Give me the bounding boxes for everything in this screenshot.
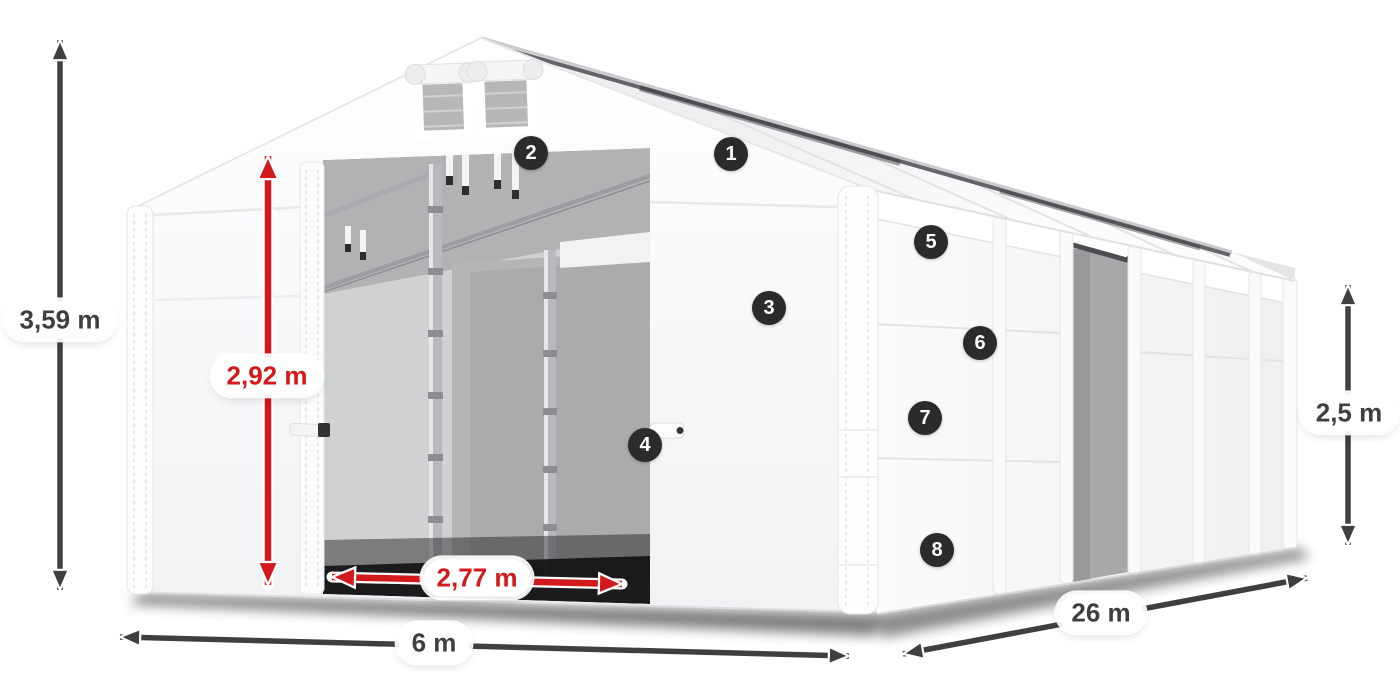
- callout-badge-7[interactable]: 7: [908, 401, 942, 435]
- callout-badge-3[interactable]: 3: [752, 291, 786, 325]
- arrow-width: [120, 637, 849, 656]
- gable-vent-right: [467, 59, 545, 132]
- callout-badge-6[interactable]: 6: [963, 326, 997, 360]
- callout-badge-1[interactable]: 1: [714, 137, 748, 171]
- side-door-opening: [1066, 243, 1134, 582]
- tent-illustration: [0, 0, 1400, 700]
- callout-badge-5[interactable]: 5: [914, 225, 948, 259]
- entrance-interior: [323, 148, 650, 604]
- dimension-label-length: 26 m: [1058, 594, 1143, 631]
- dimension-label-side-height: 2,5 m: [1303, 394, 1396, 431]
- callout-badge-8[interactable]: 8: [920, 533, 954, 567]
- dimension-label-entrance-height: 2,92 m: [214, 357, 321, 394]
- dimension-label-total-height: 3,59 m: [7, 301, 114, 338]
- tent-dimension-diagram: 3,59 m 2,92 m 2,77 m 6 m 26 m 2,5 m 1 2 …: [0, 0, 1400, 700]
- door-latch: [290, 423, 330, 437]
- dimension-label-width: 6 m: [399, 624, 470, 661]
- callout-badge-4[interactable]: 4: [628, 428, 662, 462]
- dimension-label-entrance-width: 2,77 m: [424, 559, 531, 596]
- callout-badge-2[interactable]: 2: [514, 136, 548, 170]
- interior-pole-left: [428, 164, 443, 588]
